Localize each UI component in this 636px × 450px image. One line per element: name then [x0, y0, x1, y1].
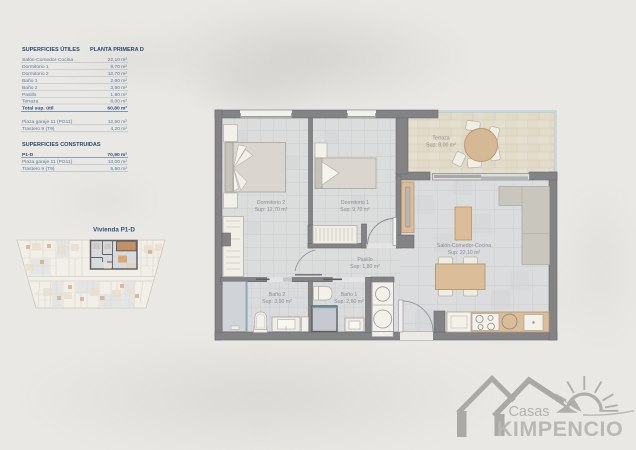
svg-text:9,70 m²: 9,70 m²: [110, 64, 127, 70]
svg-text:Dormitorio 1: Dormitorio 1: [22, 64, 49, 70]
svg-text:2,60 m²: 2,60 m²: [110, 78, 127, 84]
svg-text:Baño 2: Baño 2: [269, 292, 286, 298]
svg-text:P1-D: P1-D: [22, 152, 34, 158]
svg-text:4,20 m²: 4,20 m²: [110, 126, 127, 132]
svg-text:Dormitorio 1: Dormitorio 1: [341, 200, 369, 206]
svg-text:13,00 m²: 13,00 m²: [108, 159, 128, 165]
svg-text:KIMPENCIO: KIMPENCIO: [497, 417, 623, 441]
svg-text:3,90 m²: 3,90 m²: [110, 85, 127, 91]
svg-text:70,90 m²: 70,90 m²: [107, 152, 127, 158]
svg-text:Plaza garaje 11 (PG11): Plaza garaje 11 (PG11): [22, 119, 73, 125]
svg-text:SUPERFICIES ÚTILES: SUPERFICIES ÚTILES: [22, 46, 80, 53]
svg-text:12,50 m²: 12,50 m²: [108, 119, 128, 125]
svg-text:12,70 m²: 12,70 m²: [108, 71, 128, 77]
svg-text:5,50 m²: 5,50 m²: [110, 166, 127, 172]
svg-text:Sup: 1,80 m²: Sup: 1,80 m²: [350, 264, 380, 270]
svg-text:Dormitorio 2: Dormitorio 2: [257, 200, 285, 206]
svg-text:Terraza: Terraza: [22, 99, 39, 105]
svg-text:Trastero 9 (T9): Trastero 9 (T9): [22, 166, 55, 172]
svg-text:Vivienda P1-D: Vivienda P1-D: [93, 227, 135, 234]
svg-text:1,80 m²: 1,80 m²: [110, 92, 127, 98]
svg-text:Baño 1: Baño 1: [22, 78, 38, 84]
svg-text:Plaza garaje 11 (PG11): Plaza garaje 11 (PG11): [22, 159, 73, 165]
svg-text:Sup: 22,10 m²: Sup: 22,10 m²: [448, 250, 481, 256]
svg-text:60,80 m²: 60,80 m²: [107, 106, 127, 112]
svg-text:Baño 2: Baño 2: [22, 85, 38, 91]
svg-text:Sup: 2,60 m²: Sup: 2,60 m²: [334, 299, 364, 305]
svg-text:Terraza: Terraza: [432, 136, 449, 142]
svg-text:Sup: 8,00 m²: Sup: 8,00 m²: [426, 143, 456, 149]
svg-text:Pasillo: Pasillo: [357, 257, 372, 263]
svg-text:Sup: 9,70 m²: Sup: 9,70 m²: [340, 207, 370, 213]
svg-text:Sup: 12,70 m²: Sup: 12,70 m²: [255, 207, 288, 213]
svg-text:Trastero 9 (T9): Trastero 9 (T9): [22, 126, 55, 132]
svg-text:Total sup. útil: Total sup. útil: [22, 106, 54, 112]
svg-text:Sup: 3,90 m²: Sup: 3,90 m²: [262, 299, 292, 305]
svg-text:Pasillo: Pasillo: [22, 92, 37, 98]
svg-text:Baño 1: Baño 1: [341, 292, 358, 298]
svg-text:22,10 m²: 22,10 m²: [108, 57, 128, 63]
svg-text:PLANTA PRIMERA D: PLANTA PRIMERA D: [90, 47, 144, 53]
svg-text:8,00 m²: 8,00 m²: [110, 99, 127, 105]
svg-text:Salón-Comedor-Cocina: Salón-Comedor-Cocina: [22, 57, 73, 63]
svg-text:Dormitorio 2: Dormitorio 2: [22, 71, 49, 77]
svg-text:Salón-Comedor-Cocina: Salón-Comedor-Cocina: [437, 243, 491, 249]
svg-text:SUPERFICIES CONSTRUIDAS: SUPERFICIES CONSTRUIDAS: [22, 142, 101, 148]
